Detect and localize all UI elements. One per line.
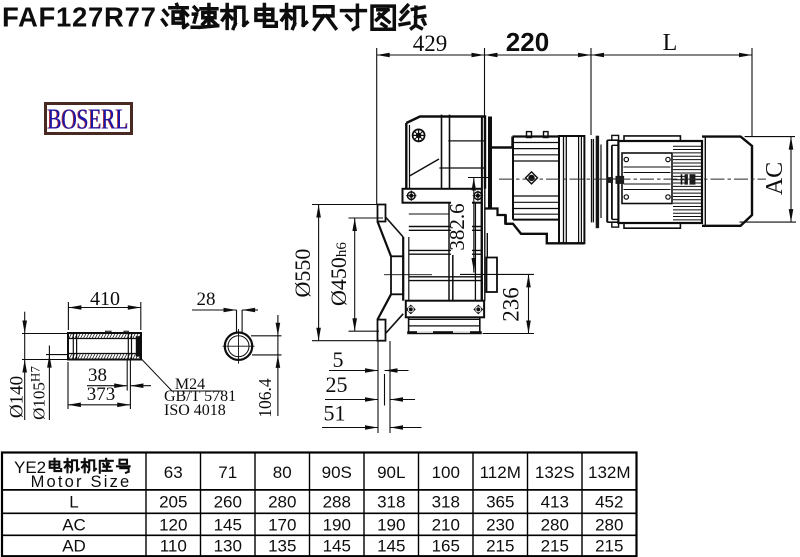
svg-text:5: 5 (333, 347, 344, 372)
svg-text:112M: 112M (480, 463, 521, 482)
svg-text:373: 373 (87, 384, 116, 405)
svg-text:80: 80 (273, 463, 292, 482)
svg-text:25: 25 (326, 372, 348, 397)
svg-text:190: 190 (323, 516, 351, 535)
svg-text:382.6: 382.6 (445, 203, 469, 250)
svg-text:280: 280 (595, 516, 623, 535)
svg-text:205: 205 (159, 493, 187, 512)
svg-text:410: 410 (90, 288, 120, 310)
svg-text:63: 63 (164, 463, 183, 482)
svg-text:L: L (69, 493, 78, 512)
svg-text:106.4: 106.4 (255, 378, 275, 418)
svg-text:260: 260 (214, 493, 242, 512)
svg-text:215: 215 (541, 537, 569, 556)
svg-text:215: 215 (595, 537, 623, 556)
svg-text:28: 28 (197, 289, 216, 310)
svg-text:280: 280 (268, 493, 296, 512)
svg-text:71: 71 (218, 463, 237, 482)
svg-text:288: 288 (323, 493, 351, 512)
svg-text:365: 365 (486, 493, 514, 512)
svg-text:170: 170 (268, 516, 296, 535)
svg-text:135: 135 (268, 537, 296, 556)
svg-text:100: 100 (432, 463, 460, 482)
svg-text:132M: 132M (588, 463, 631, 482)
svg-text:51: 51 (324, 401, 346, 426)
svg-text:90S: 90S (322, 463, 352, 482)
svg-text:110: 110 (160, 537, 187, 556)
svg-text:130: 130 (214, 537, 242, 556)
svg-text:452: 452 (595, 493, 623, 512)
svg-text:318: 318 (377, 493, 405, 512)
svg-text:ISO 4018: ISO 4018 (164, 402, 226, 419)
svg-text:BOSERL: BOSERL (48, 105, 129, 136)
svg-text:FAF127R77: FAF127R77 (2, 1, 157, 32)
svg-text:236: 236 (499, 287, 524, 322)
svg-text:145: 145 (377, 537, 405, 556)
svg-text:AC: AC (762, 162, 788, 195)
svg-text:38: 38 (88, 365, 107, 386)
svg-text:AD: AD (62, 537, 86, 556)
svg-text:215: 215 (486, 537, 514, 556)
svg-text:413: 413 (541, 493, 569, 512)
svg-text:220: 220 (506, 27, 549, 57)
svg-text:L: L (663, 30, 678, 56)
svg-text:120: 120 (159, 516, 187, 535)
svg-text:145: 145 (214, 516, 242, 535)
svg-text:145: 145 (323, 537, 351, 556)
svg-text:132S: 132S (535, 463, 575, 482)
svg-text:90L: 90L (377, 463, 405, 482)
svg-text:429: 429 (413, 31, 448, 56)
svg-text:Ø550: Ø550 (290, 249, 315, 298)
svg-text:AC: AC (62, 516, 86, 535)
svg-text:210: 210 (432, 516, 460, 535)
svg-text:318: 318 (432, 493, 460, 512)
svg-text:165: 165 (432, 537, 460, 556)
svg-text:230: 230 (486, 516, 514, 535)
svg-text:280: 280 (541, 516, 569, 535)
svg-text:Ø140: Ø140 (7, 376, 28, 418)
svg-text:190: 190 (377, 516, 405, 535)
svg-text:Motor Size: Motor Size (31, 473, 132, 491)
